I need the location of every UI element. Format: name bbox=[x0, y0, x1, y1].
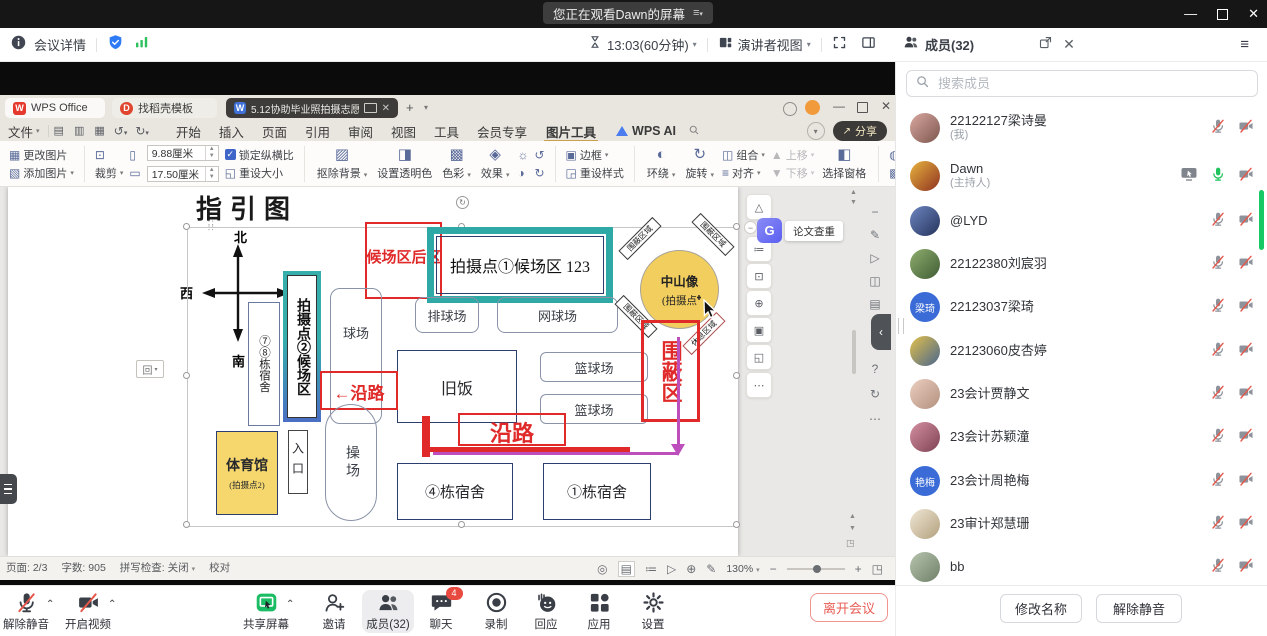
status-spellcheck[interactable]: 拼写检查: 关闭 ▾ bbox=[120, 563, 195, 574]
ribbon-icon: ◱ bbox=[225, 167, 236, 179]
member-row[interactable]: @LYD bbox=[896, 201, 1267, 241]
status-icon-outline[interactable]: ≔ bbox=[645, 562, 657, 576]
avatar bbox=[910, 422, 940, 452]
member-search-box[interactable] bbox=[906, 70, 1258, 97]
menu-tab-5[interactable]: 视图 bbox=[382, 122, 425, 141]
width-input[interactable]: 17.50厘米▲▼ bbox=[147, 166, 219, 182]
view-mode-caret-icon[interactable]: ▾ bbox=[807, 40, 811, 49]
minus-collapse-icon[interactable]: − bbox=[744, 221, 757, 234]
camera-off-icon[interactable] bbox=[1238, 384, 1254, 405]
close-panel-icon[interactable]: ✕ bbox=[1063, 36, 1075, 53]
member-row[interactable]: 23会计苏颖潼 bbox=[896, 417, 1267, 457]
screen-sharing-icon bbox=[1180, 165, 1198, 188]
zoom-out-button[interactable]: − bbox=[770, 562, 777, 576]
ribbon-item[interactable]: ▯ bbox=[129, 148, 140, 161]
meeting-header-bar: 会议详情 13:03(60分钟) ▾ 演讲者视图 ▾ 成员(32) ✕ ≡ bbox=[0, 28, 1267, 62]
wps-ai-icon bbox=[616, 126, 628, 136]
selection-handle[interactable] bbox=[183, 521, 190, 528]
network-signal-icon bbox=[134, 34, 150, 55]
ribbon-item-move_down[interactable]: ▼下移▾ bbox=[771, 166, 814, 179]
member-row[interactable]: 22122380刘宸羽 bbox=[896, 244, 1267, 284]
window-minimize-button[interactable]: — bbox=[1184, 0, 1197, 28]
ribbon-item[interactable]: ⊡ bbox=[95, 148, 124, 161]
fit-width-icon[interactable]: ◳ bbox=[846, 538, 855, 549]
mic-muted-icon[interactable] bbox=[1210, 471, 1226, 492]
member-name: 22123060皮杏婷 bbox=[950, 343, 1047, 359]
mic-muted-icon[interactable] bbox=[1210, 118, 1226, 139]
wps-close-icon[interactable]: ✕ bbox=[881, 99, 891, 113]
duration-caret-icon[interactable]: ▾ bbox=[693, 40, 697, 49]
volleyball-box: 排球场 bbox=[415, 297, 479, 333]
ribbon-button-effect[interactable]: ◈效果 ▾ bbox=[481, 147, 510, 181]
menu-tab-1[interactable]: 插入 bbox=[210, 122, 253, 141]
camera-off-icon[interactable] bbox=[1238, 118, 1254, 139]
member-name: 23审计郑慧珊 bbox=[950, 516, 1029, 532]
docer-logo-icon: D bbox=[120, 102, 133, 115]
doc-scroll-up-icon[interactable]: ▲ bbox=[850, 189, 857, 196]
avatar bbox=[910, 206, 940, 236]
paper-check-label: 论文查重 bbox=[785, 221, 843, 241]
record-icon bbox=[485, 591, 508, 614]
top-title-bar: 您正在观看Dawn的屏幕 ≡▾ — ✕ bbox=[0, 0, 1267, 28]
more-tools-icon[interactable]: ⋯ bbox=[746, 372, 772, 398]
toolbar-label: 邀请 bbox=[323, 616, 346, 632]
road-red-bar-horizontal bbox=[430, 447, 630, 452]
member-row[interactable]: bb bbox=[896, 547, 1267, 587]
avatar bbox=[910, 509, 940, 539]
ribbon-icon: ▧ bbox=[9, 167, 20, 179]
camera-off-icon[interactable] bbox=[1238, 514, 1254, 535]
playground-box: 操场 bbox=[325, 404, 377, 521]
collapsed-sidebar-handle[interactable] bbox=[0, 474, 17, 504]
panel-rail-icon[interactable]: ◫ bbox=[866, 272, 884, 290]
ribbon-icon: ▨ bbox=[335, 147, 349, 162]
member-name: Dawn bbox=[950, 161, 990, 177]
selection-handle[interactable] bbox=[733, 223, 740, 230]
account-avatar[interactable] bbox=[805, 100, 820, 115]
photo-spot1-box: 拍摄点①候场区 123 bbox=[427, 227, 613, 303]
chat-icon: 4 bbox=[430, 591, 453, 614]
dorm-1-box: ①栋宿舍 bbox=[543, 463, 651, 520]
map-title: 指引图 bbox=[196, 189, 336, 219]
redo-icon[interactable]: ↻▾ bbox=[135, 125, 149, 137]
member-name: 23会计贾静文 bbox=[950, 386, 1029, 402]
members-panel: 22122127梁诗曼 (我) Dawn (主持人) @LYD 22122380… bbox=[895, 62, 1267, 585]
zoom-in-button[interactable]: + bbox=[855, 562, 862, 576]
wps-minimize-icon[interactable]: — bbox=[833, 99, 845, 113]
avatar bbox=[910, 113, 940, 143]
gear-icon bbox=[642, 591, 665, 614]
eject-icon[interactable]: △ bbox=[746, 194, 772, 220]
ribbon-icon: ▣ bbox=[566, 149, 577, 161]
toolbar-caret-icon[interactable]: ⌃ bbox=[108, 599, 116, 610]
ribbon-icon: ◐ bbox=[657, 147, 666, 162]
photo-spot2-inner: 拍摄点②候场区 bbox=[287, 275, 317, 418]
member-name: 23会计苏颖潼 bbox=[950, 429, 1029, 445]
ribbon-item-group[interactable]: ◫组合▾ bbox=[722, 148, 765, 161]
photo-spot2-box: 拍摄点②候场区 bbox=[283, 271, 321, 422]
toolbar-label: 设置 bbox=[642, 616, 665, 632]
ribbon-button-rotate[interactable]: ↻旋转 ▾ bbox=[685, 147, 714, 181]
meeting-duration: 13:03(60分钟) bbox=[607, 35, 689, 54]
watching-screen-banner: 您正在观看Dawn的屏幕 ≡▾ bbox=[543, 2, 713, 24]
toolbar-settings[interactable]: 设置 bbox=[621, 589, 685, 634]
selection-handle[interactable] bbox=[183, 223, 190, 230]
share-icon bbox=[255, 591, 278, 614]
wps-office-window: W WPS Office D 找稻壳模板 W 5.12协助毕业照拍摄志愿活动… … bbox=[0, 95, 895, 580]
ribbon-item[interactable]: ↻ bbox=[534, 166, 544, 179]
copy-tool-icon[interactable]: ▣ bbox=[746, 317, 772, 343]
members-icon bbox=[377, 591, 400, 614]
file-menu[interactable]: 文件▾ bbox=[0, 122, 48, 141]
dorm-4-box: ④栋宿舍 bbox=[397, 463, 513, 520]
mic-muted-icon[interactable] bbox=[1210, 427, 1226, 448]
member-name: 22122127梁诗曼 bbox=[950, 113, 1047, 129]
search-input[interactable] bbox=[936, 75, 1249, 92]
camera-off-icon[interactable] bbox=[1238, 471, 1254, 492]
ribbon-item[interactable]: ◑ bbox=[517, 166, 528, 179]
camera-off-icon[interactable] bbox=[1238, 211, 1254, 232]
share-button[interactable]: ↗分享 bbox=[833, 121, 887, 141]
status-icon-edit[interactable]: ✎ bbox=[706, 562, 716, 576]
window-close-button[interactable]: ✕ bbox=[1248, 0, 1259, 28]
toolbar-label: 共享屏幕 bbox=[243, 616, 289, 632]
zoom-level[interactable]: 130% ▾ bbox=[726, 563, 759, 575]
banner-menu-icon[interactable]: ≡▾ bbox=[693, 7, 703, 19]
invite-icon bbox=[323, 591, 346, 614]
doc-file-icon: W bbox=[234, 102, 246, 114]
paper-check-icon[interactable]: G bbox=[757, 218, 782, 243]
fit-page-icon[interactable]: ◳ bbox=[872, 562, 883, 576]
status-icon-focus[interactable]: ◎ bbox=[597, 562, 607, 576]
ribbon-item-change_pic[interactable]: ▦更改图片 bbox=[9, 148, 74, 161]
docer-template-tab[interactable]: D 找稻壳模板 bbox=[112, 98, 217, 118]
members-panel-icon bbox=[903, 34, 919, 55]
ribbon-item-crop[interactable]: 裁剪▾ bbox=[95, 166, 124, 179]
apps-icon bbox=[588, 591, 611, 614]
tab-list-caret-icon[interactable]: ▾ bbox=[424, 103, 428, 112]
ribbon-item[interactable]: ↺ bbox=[534, 148, 544, 161]
mic-muted-icon[interactable] bbox=[1210, 341, 1226, 362]
member-row[interactable]: 22122127梁诗曼 (我) bbox=[896, 108, 1267, 148]
toolbar-caret-icon[interactable]: ⌃ bbox=[286, 599, 294, 610]
ribbon-item-align[interactable]: ≡对齐▾ bbox=[722, 166, 765, 179]
mic-off-icon bbox=[15, 591, 38, 614]
toolbar-start-video[interactable]: 开启视频⌃ bbox=[56, 589, 120, 634]
banner-text: 您正在观看Dawn的屏幕 bbox=[553, 4, 685, 23]
wps-home-tab[interactable]: W WPS Office bbox=[5, 98, 105, 118]
route-line-horizontal bbox=[433, 452, 679, 455]
along-road-label-2: 沿路 bbox=[458, 416, 566, 442]
search-icon bbox=[915, 74, 930, 94]
member-role: (我) bbox=[950, 129, 1047, 143]
menu-tab-3[interactable]: 引用 bbox=[296, 122, 339, 141]
doc-scroll-down-icon[interactable]: ▼ bbox=[850, 199, 857, 206]
zoom-slider[interactable] bbox=[787, 568, 845, 570]
size-inputs: 9.88厘米▲▼17.50厘米▲▼ bbox=[147, 145, 219, 182]
status-icon-web[interactable]: ⊕ bbox=[686, 562, 696, 576]
meeting-app-window: 您正在观看Dawn的屏幕 ≡▾ — ✕ 会议详情 13:03(60分钟) ▾ 演… bbox=[0, 0, 1267, 636]
member-name: bb bbox=[950, 559, 964, 575]
ribbon-item[interactable]: ▭ bbox=[129, 166, 140, 179]
cam-off-icon bbox=[77, 591, 100, 614]
mic-muted-icon[interactable] bbox=[1210, 297, 1226, 318]
status-icon-play[interactable]: ▷ bbox=[667, 562, 676, 576]
panel-resize-handle[interactable] bbox=[898, 318, 904, 334]
pen-tool-icon[interactable]: ✎ bbox=[866, 226, 884, 244]
panel-menu-icon[interactable]: ≡ bbox=[1240, 36, 1249, 53]
toolbar-caret-icon[interactable]: ⌃ bbox=[46, 599, 54, 610]
meeting-bottom-toolbar: 离开会议 修改名称 解除静音 解除静音⌃开启视频⌃共享屏幕⌃邀请成员(32)4聊… bbox=[0, 585, 1267, 636]
member-name: 23会计周艳梅 bbox=[950, 473, 1029, 489]
ribbon-item-move_up[interactable]: ▲上移▾ bbox=[771, 148, 814, 161]
wps-menu-bar: 文件▾▤▥▦↺▾↻▾开始插入页面引用审阅视图工具会员专享图片工具WPS AI▾↗… bbox=[0, 121, 895, 141]
ribbon-icon: ▭ bbox=[129, 167, 140, 179]
fit-tool-icon[interactable]: ◱ bbox=[746, 344, 772, 370]
photo-spot1-label: 拍摄点①候场区 123 bbox=[436, 236, 604, 294]
menu-tab-4[interactable]: 审阅 bbox=[339, 122, 382, 141]
mic-muted-icon[interactable] bbox=[1210, 254, 1226, 275]
toolbar-label: 录制 bbox=[485, 616, 508, 632]
wps-document-area: 指引图∷∷ 北 南 东 西 ↻候场区后区拍摄点①候场区 123拍摄点②候场区⑦⑧… bbox=[0, 187, 895, 556]
mic-on-icon[interactable] bbox=[1210, 166, 1226, 187]
member-name: 22122380刘宸羽 bbox=[950, 256, 1047, 272]
more-rail-icon[interactable]: ⋯ bbox=[866, 410, 884, 428]
ribbon-icon: ▦ bbox=[9, 149, 20, 161]
document-tab[interactable]: W 5.12协助毕业照拍摄志愿活动… ✕ bbox=[226, 98, 398, 118]
toolbar-label: 成员(32) bbox=[366, 616, 409, 632]
fullscreen-icon[interactable] bbox=[832, 35, 847, 55]
ribbon-button-selection_pane[interactable]: ◧选择窗格 bbox=[822, 147, 866, 181]
selection-handle[interactable] bbox=[733, 521, 740, 528]
rename-button[interactable]: 修改名称 bbox=[1000, 594, 1082, 623]
ribbon-icon: ☼ bbox=[517, 149, 528, 161]
leave-meeting-button[interactable]: 离开会议 bbox=[810, 593, 888, 622]
member-row[interactable]: 梁琦 22123037梁琦 bbox=[896, 287, 1267, 327]
ribbon-icon: ◨ bbox=[398, 147, 412, 162]
ribbon-icon: ◧ bbox=[837, 147, 851, 162]
wps-ai-tab[interactable]: WPS AI bbox=[606, 124, 686, 138]
play-rail-icon[interactable]: ▷ bbox=[866, 249, 884, 267]
duration-hourglass-icon bbox=[588, 35, 602, 54]
window-maximize-button[interactable] bbox=[1217, 9, 1228, 20]
ribbon-icon: ◫ bbox=[722, 149, 733, 161]
share-arrow-icon: ↗ bbox=[843, 126, 851, 137]
meeting-info-icon[interactable] bbox=[10, 34, 27, 56]
ribbon-item-border[interactable]: ▣边框▾ bbox=[566, 148, 624, 161]
camera-off-icon[interactable] bbox=[1238, 341, 1254, 362]
ribbon-item-lock_ratio[interactable]: ✓锁定纵横比 bbox=[225, 148, 294, 161]
campus-map-image[interactable]: 指引图∷∷ 北 南 东 西 ↻候场区后区拍摄点①候场区 123拍摄点②候场区⑦⑧… bbox=[0, 187, 895, 556]
rotate-handle[interactable]: ↻ bbox=[456, 196, 469, 209]
print-icon[interactable]: ▥ bbox=[74, 126, 84, 137]
popout-panel-icon[interactable] bbox=[1038, 35, 1053, 55]
toolbar-share-screen[interactable]: 共享屏幕⌃ bbox=[234, 589, 298, 634]
member-role: (主持人) bbox=[950, 177, 990, 191]
ribbon-icon: ▼ bbox=[771, 167, 783, 179]
notes-rail-icon[interactable]: ▤ bbox=[866, 295, 884, 313]
toolbar-label: 应用 bbox=[588, 616, 611, 632]
avatar: 梁琦 bbox=[910, 292, 940, 322]
ribbon-icon: ⊡ bbox=[95, 149, 105, 161]
member-row[interactable]: 22123060皮杏婷 bbox=[896, 331, 1267, 371]
member-name: 22123037梁琦 bbox=[950, 299, 1034, 315]
camera-off-icon[interactable] bbox=[1238, 427, 1254, 448]
ribbon-icon: ◲ bbox=[566, 167, 577, 179]
layout-anchor-button: 回▾ bbox=[136, 360, 164, 378]
member-name: @LYD bbox=[950, 213, 988, 229]
collapse-panel-handle[interactable]: ‹ bbox=[871, 314, 891, 350]
chat-badge: 4 bbox=[446, 587, 463, 600]
shared-screen-area: W WPS Office D 找稻壳模板 W 5.12协助毕业照拍摄志愿活动… … bbox=[0, 62, 895, 585]
ribbon-icon: ▩ bbox=[449, 147, 463, 162]
avatar: 艳梅 bbox=[910, 466, 940, 496]
camera-off-icon[interactable] bbox=[1238, 297, 1254, 318]
dorm-78-box: ⑦⑧栋宿舍 bbox=[248, 302, 280, 426]
mic-muted-icon[interactable] bbox=[1210, 384, 1226, 405]
help-rail-icon[interactable]: ? bbox=[866, 360, 884, 378]
wps-tab-bar: W WPS Office D 找稻壳模板 W 5.12协助毕业照拍摄志愿活动… … bbox=[0, 95, 895, 121]
new-tab-icon[interactable]: + bbox=[406, 100, 414, 115]
gym-box: 体育馆(拍摄点2) bbox=[216, 431, 278, 515]
ribbon-icon: ↺ bbox=[534, 149, 544, 161]
toolbar-label: 开启视频 bbox=[65, 616, 111, 632]
menu-tab-6[interactable]: 工具 bbox=[425, 122, 468, 141]
ribbon-icon: ↻ bbox=[693, 147, 706, 162]
sync-status-icon[interactable] bbox=[783, 102, 797, 116]
mouse-cursor bbox=[696, 294, 722, 322]
zoom-tool-icon[interactable]: ⊕ bbox=[746, 290, 772, 316]
wps-status-bar: 页面: 2/3字数: 905拼写检查: 关闭 ▾校对◎▤≔▷⊕✎130% ▾−+… bbox=[0, 556, 895, 580]
tennis-box: 网球场 bbox=[497, 297, 618, 333]
page-next-icon[interactable]: ▼ bbox=[849, 525, 856, 532]
ribbon-button-color[interactable]: ▩色彩 ▾ bbox=[442, 147, 471, 181]
avatar bbox=[910, 336, 940, 366]
meeting-details-label[interactable]: 会议详情 bbox=[34, 35, 86, 54]
mic-muted-icon[interactable] bbox=[1210, 557, 1226, 578]
toolbar-label: 回应 bbox=[535, 616, 558, 632]
member-row[interactable]: 艳梅 23会计周艳梅 bbox=[896, 461, 1267, 501]
menu-tab-picture-tools[interactable]: 图片工具 bbox=[536, 122, 606, 141]
toolbar-label: 解除静音 bbox=[3, 616, 49, 632]
react-icon bbox=[535, 591, 558, 614]
side-panel-icon[interactable] bbox=[861, 35, 876, 55]
status-page: 页面: 2/3 bbox=[6, 563, 47, 574]
view-mode-label[interactable]: 演讲者视图 bbox=[738, 35, 803, 54]
export-icon[interactable]: ▦ bbox=[94, 126, 104, 137]
mic-muted-icon[interactable] bbox=[1210, 211, 1226, 232]
save-icon[interactable]: ▤ bbox=[54, 126, 64, 137]
ribbon-icon: ◈ bbox=[489, 147, 501, 162]
view-mode-icon bbox=[718, 35, 733, 55]
undo-icon[interactable]: ↺▾ bbox=[114, 125, 128, 137]
road-red-bar-vertical bbox=[422, 416, 430, 457]
ribbon-icon: ◑ bbox=[517, 167, 524, 179]
menu-search-icon[interactable] bbox=[688, 124, 700, 139]
ribbon-icon: ▲ bbox=[771, 149, 783, 161]
ribbon-collapse-icon[interactable]: ▾ bbox=[807, 122, 825, 140]
mic-muted-icon[interactable] bbox=[1210, 514, 1226, 535]
avatar bbox=[910, 249, 940, 279]
document-tab-label: 5.12协助毕业照拍摄志愿活动… bbox=[251, 101, 359, 116]
member-row[interactable]: Dawn (主持人) bbox=[896, 156, 1267, 196]
enclosure-label: 围蔽区 bbox=[652, 324, 690, 419]
route-line-vertical bbox=[677, 337, 680, 449]
members-panel-title: 成员(32) bbox=[925, 35, 974, 54]
tab-sharing-monitor-icon bbox=[364, 103, 377, 113]
tab-close-icon[interactable]: ✕ bbox=[382, 103, 390, 114]
member-row[interactable]: 23审计郑慧珊 bbox=[896, 504, 1267, 544]
unmute-all-button[interactable]: 解除静音 bbox=[1096, 594, 1182, 623]
avatar bbox=[910, 161, 940, 191]
refresh-rail-icon[interactable]: ↻ bbox=[866, 385, 884, 403]
lock-ratio-checkbox[interactable]: ✓ bbox=[225, 149, 236, 160]
ribbon-item-reset_style[interactable]: ◲重设样式 bbox=[566, 166, 624, 179]
wps-ribbon: ▦更改图片▧添加图片▾⊡裁剪▾▯▭9.88厘米▲▼17.50厘米▲▼✓锁定纵横比… bbox=[0, 141, 895, 187]
wps-restore-icon[interactable] bbox=[857, 102, 868, 113]
camera-off-icon[interactable] bbox=[1238, 557, 1254, 578]
ribbon-icon: ≡ bbox=[722, 167, 729, 179]
selection-handle[interactable] bbox=[458, 521, 465, 528]
menu-tab-0[interactable]: 开始 bbox=[167, 122, 210, 141]
ribbon-icon: ▯ bbox=[129, 149, 136, 161]
doc-scrollbar[interactable] bbox=[852, 330, 856, 374]
ribbon-button-remove_bg[interactable]: ▨抠除背景 ▾ bbox=[317, 147, 368, 181]
camera-off-icon[interactable] bbox=[1238, 166, 1254, 187]
ribbon-item[interactable]: ☼ bbox=[517, 148, 528, 161]
avatar bbox=[910, 552, 940, 582]
toolbar-label: 聊天 bbox=[430, 616, 453, 632]
camera-off-icon[interactable] bbox=[1238, 254, 1254, 275]
height-input[interactable]: 9.88厘米▲▼ bbox=[147, 145, 219, 161]
status-icon-page-view[interactable]: ▤ bbox=[618, 561, 635, 577]
member-list-scrollbar[interactable] bbox=[1259, 190, 1264, 250]
selection-handle[interactable] bbox=[183, 372, 190, 379]
ribbon-button-transparent[interactable]: ◨设置透明色 bbox=[377, 147, 432, 181]
ribbon-button-wrap[interactable]: ◐环绕 ▾ bbox=[647, 147, 676, 181]
page-prev-icon[interactable]: ▲ bbox=[849, 513, 856, 520]
ribbon-icon: ↻ bbox=[534, 167, 544, 179]
status-proofread[interactable]: 校对 bbox=[209, 563, 230, 574]
selection-handle[interactable] bbox=[733, 372, 740, 379]
ribbon-item-add_pic[interactable]: ▧添加图片▾ bbox=[9, 166, 74, 179]
avatar bbox=[910, 379, 940, 409]
crop-tool-icon[interactable]: ⊡ bbox=[746, 263, 772, 289]
entrance-box: 入口 bbox=[288, 430, 308, 494]
along-road-label-1: ←沿路 bbox=[322, 379, 396, 401]
docer-tab-label: 找稻壳模板 bbox=[138, 100, 193, 116]
security-shield-icon[interactable] bbox=[107, 34, 124, 56]
wps-logo-icon: W bbox=[13, 102, 26, 115]
minimize-rail-icon[interactable]: − bbox=[866, 203, 884, 221]
wps-home-tab-label: WPS Office bbox=[31, 102, 88, 114]
basketball-box-1: 篮球场 bbox=[540, 352, 648, 382]
route-arrow-icon bbox=[671, 443, 685, 455]
toolbar-unmute[interactable]: 解除静音⌃ bbox=[0, 589, 58, 634]
menu-tab-2[interactable]: 页面 bbox=[253, 122, 296, 141]
status-words: 字数: 905 bbox=[61, 563, 105, 574]
ribbon-item-reset_size[interactable]: ◱重设大小 bbox=[225, 166, 294, 179]
member-row[interactable]: 23会计贾静文 bbox=[896, 374, 1267, 414]
menu-tab-7[interactable]: 会员专享 bbox=[468, 122, 536, 141]
